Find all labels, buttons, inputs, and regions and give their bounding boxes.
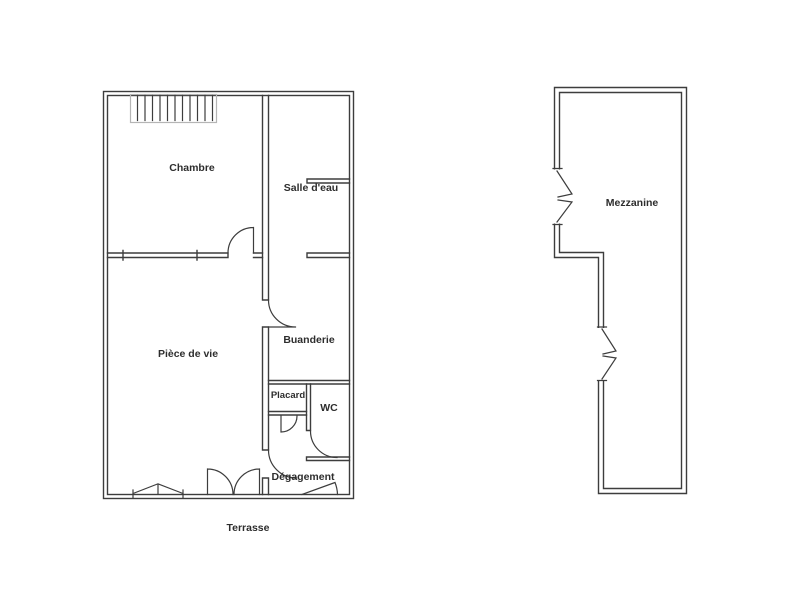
door-chambre xyxy=(228,228,254,254)
mezzanine-wall-outer xyxy=(555,88,687,494)
room-label-salle-deau: Salle d'eau xyxy=(284,182,338,194)
room-label-buanderie: Buanderie xyxy=(283,334,335,346)
wall-placard-bottom xyxy=(269,412,307,416)
room-label-chambre: Chambre xyxy=(169,162,215,174)
window-piecedevie xyxy=(133,484,183,498)
room-label-placard: Placard xyxy=(271,390,306,401)
room-label-wc: WC xyxy=(320,402,338,414)
floor-plan-drawing: Chambre Salle d'eau Pièce de vie Buander… xyxy=(0,0,800,600)
room-label-degagement: Dégagement xyxy=(271,471,335,483)
wall-buanderie-bottom xyxy=(269,381,350,385)
room-label-mezzanine: Mezzanine xyxy=(606,197,659,209)
exterior-wall-outer xyxy=(104,92,354,499)
door-french-piecedevie xyxy=(208,469,260,495)
ground-floor-plan: Chambre Salle d'eau Pièce de vie Buander… xyxy=(104,92,354,535)
stairs-treads xyxy=(138,96,213,121)
wall-salledeau-buanderie xyxy=(307,253,350,258)
wall-vertical-divider xyxy=(263,96,269,495)
door-placard xyxy=(281,416,297,432)
door-wc xyxy=(311,431,338,458)
stairs xyxy=(131,95,217,123)
wall-wc-bottom xyxy=(307,457,350,461)
room-label-piece-de-vie: Pièce de vie xyxy=(158,348,218,360)
floor-plan-page: Chambre Salle d'eau Pièce de vie Buander… xyxy=(0,0,800,600)
wall-chambre-piecedevie xyxy=(108,251,263,261)
exterior-wall-inner xyxy=(108,96,350,495)
window-gap-mask-2 xyxy=(596,328,606,381)
door-buanderie xyxy=(269,300,296,327)
upper-floor-plan: Mezzanine xyxy=(552,88,687,494)
wall-placard-wc xyxy=(307,384,311,431)
mezzanine-wall-inner xyxy=(560,93,682,489)
door-entry-terrasse xyxy=(302,483,338,495)
stairs-frame xyxy=(131,95,217,123)
room-label-terrasse: Terrasse xyxy=(226,522,269,534)
